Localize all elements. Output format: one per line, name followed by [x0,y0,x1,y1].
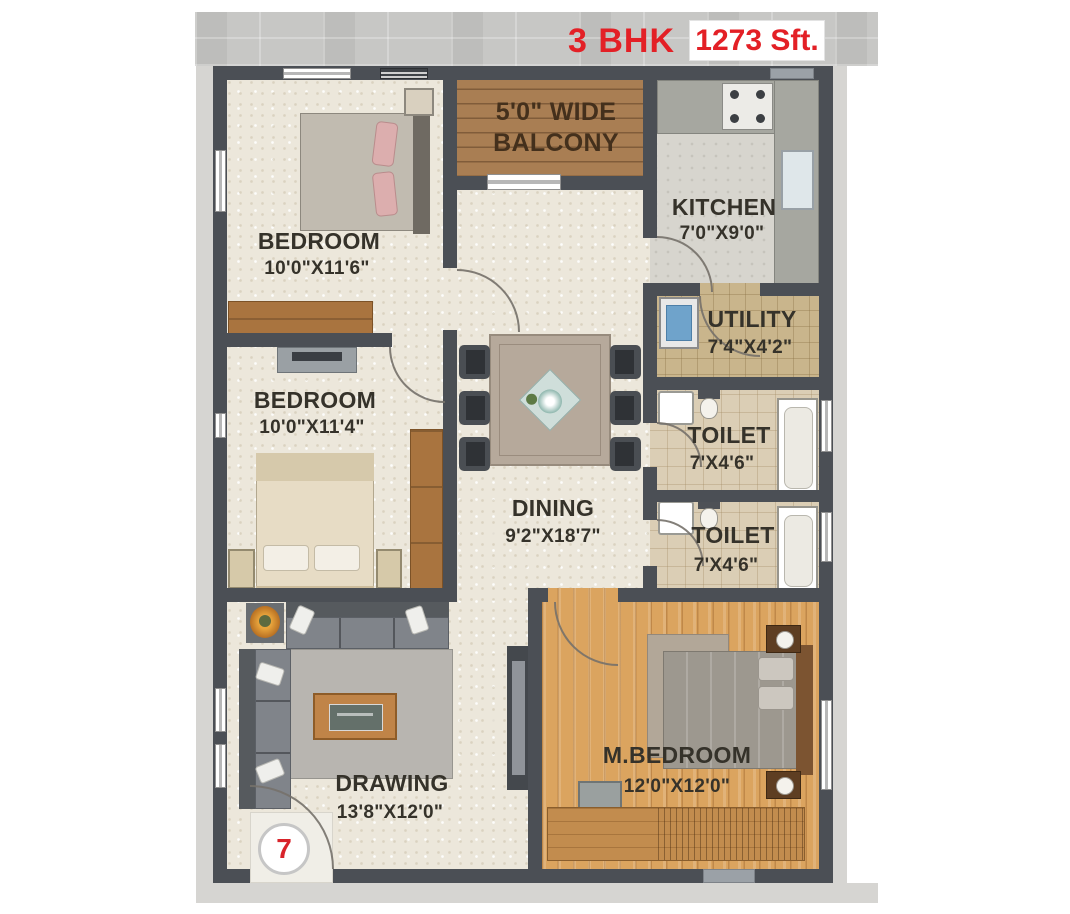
dining-dims: 9'2"X18'7" [505,527,601,546]
toilet2-dims: 7'X4'6" [694,556,759,575]
unit-number-badge: 7 [258,823,310,875]
mbedroom-dims: 12'0"X12'0" [624,777,730,796]
kitchen-label: KITCHEN [672,196,776,219]
drawing-dims: 13'8"X12'0" [337,803,443,822]
balcony-label-line1: 5'0" WIDE [496,100,617,125]
utility-label: UTILITY [708,308,797,331]
toilet1-dims: 7'X4'6" [690,454,755,473]
kitchen-dims: 7'0"X9'0" [680,224,765,243]
mbedroom-label: M.BEDROOM [603,744,751,767]
drawing-label: DRAWING [335,772,448,795]
bedroom2-label: BEDROOM [254,389,376,412]
utility-dims: 7'4"X4'2" [708,338,793,357]
bedroom1-dims: 10'0"X11'6" [264,259,369,278]
toilet2-label: TOILET [691,524,774,547]
bedroom2-dims: 10'0"X11'4" [259,418,364,437]
bedroom1-label: BEDROOM [258,230,380,253]
floor-plan: 3 BHK 1273 Sft. [0,0,1070,914]
dining-label: DINING [512,497,594,520]
toilet1-label: TOILET [687,424,770,447]
balcony-label-line2: BALCONY [493,131,619,156]
